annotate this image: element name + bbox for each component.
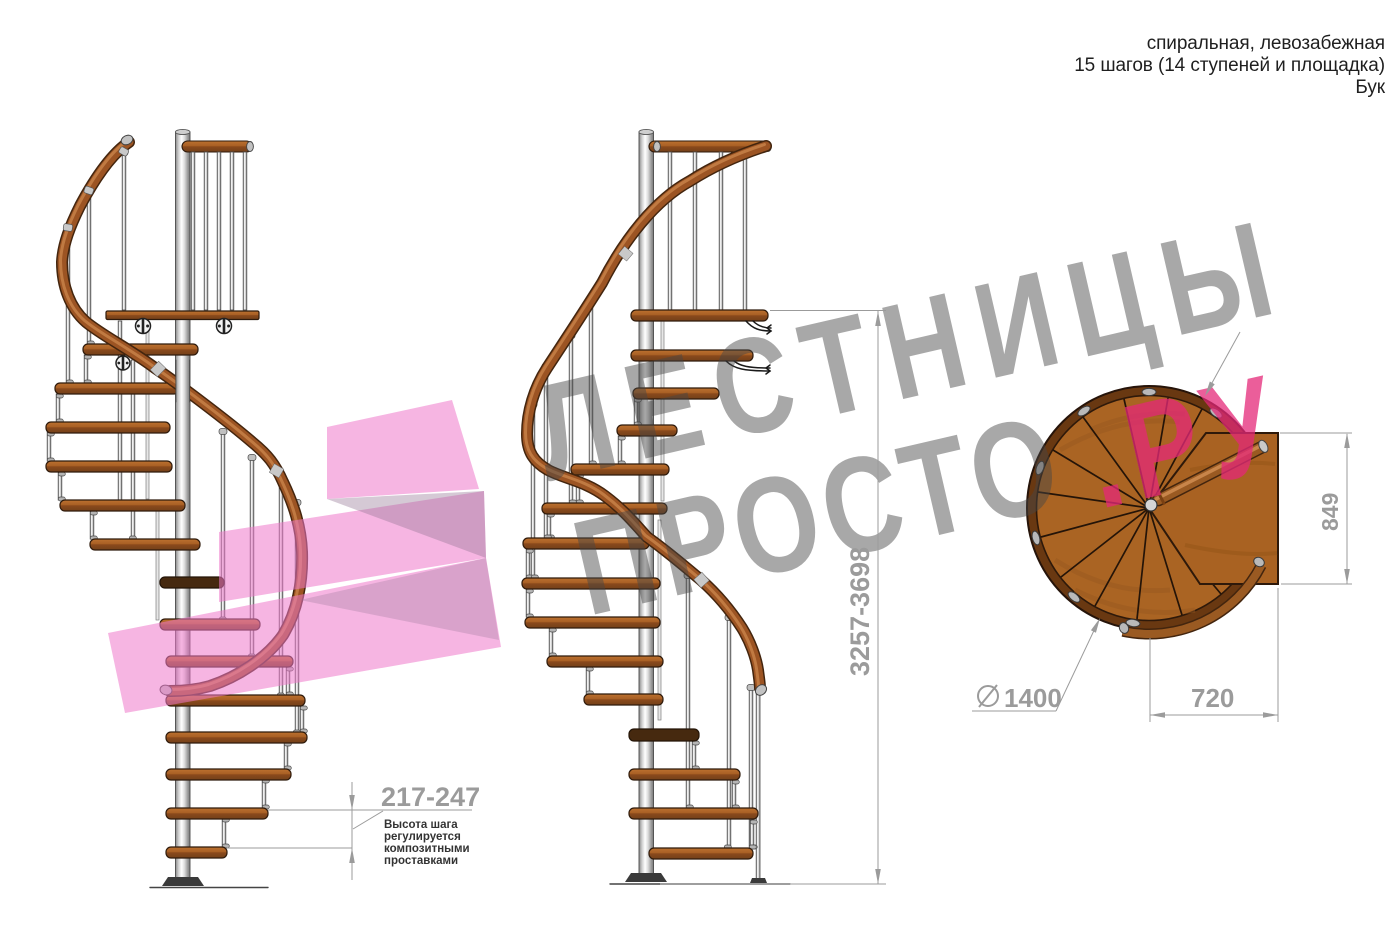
svg-text:849: 849 <box>1317 493 1343 531</box>
svg-text:1400: 1400 <box>1004 683 1062 713</box>
svg-text:Бук: Бук <box>1355 77 1385 98</box>
svg-text:217-247: 217-247 <box>381 782 480 812</box>
svg-text:720: 720 <box>1191 683 1234 713</box>
svg-text:3257-3698: 3257-3698 <box>845 547 875 676</box>
svg-text:композитными: композитными <box>384 843 470 855</box>
svg-text:15 шагов (14 ступеней и площад: 15 шагов (14 ступеней и площадка) <box>1074 55 1385 76</box>
svg-text:регулируется: регулируется <box>384 831 461 843</box>
svg-text:Высота шага: Высота шага <box>384 819 458 831</box>
svg-text:проставками: проставками <box>384 855 458 867</box>
svg-text:спиральная, левозабежная: спиральная, левозабежная <box>1147 33 1385 54</box>
